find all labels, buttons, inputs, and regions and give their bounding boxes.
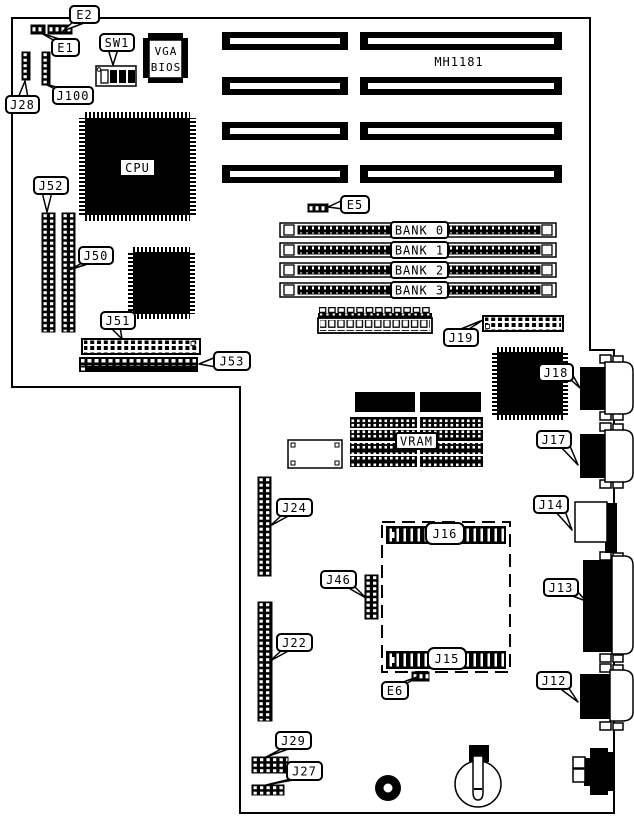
svg-text:J14: J14 — [539, 498, 564, 512]
sw1-dip-switch — [96, 66, 136, 86]
bank1-label: BANK 1 — [391, 242, 448, 258]
isa-slot — [222, 165, 348, 183]
j15-connector: J15 — [387, 648, 505, 669]
callout-e5: E5 — [328, 196, 369, 213]
svg-text:J100: J100 — [57, 89, 90, 103]
svg-text:E1: E1 — [57, 41, 73, 55]
callout-j12: J12 — [537, 672, 578, 702]
j24-header — [258, 477, 271, 576]
svg-text:J28: J28 — [10, 98, 35, 112]
svg-text:J22: J22 — [282, 636, 307, 650]
svg-text:J19: J19 — [449, 331, 474, 345]
callout-j24: J24 — [270, 499, 312, 526]
e5-jumper-block — [308, 204, 328, 212]
callout-j100: J100 — [45, 84, 93, 104]
isa-slot — [222, 32, 348, 50]
keyboard-din-connector — [573, 748, 613, 795]
callout-j29: J29 — [266, 732, 311, 757]
video-qfp-chip — [492, 347, 568, 420]
svg-text:BANK 0: BANK 0 — [395, 224, 444, 238]
j18-port — [580, 362, 633, 414]
isa-slot-group — [222, 32, 562, 183]
bank0-label: BANK 0 — [391, 222, 448, 238]
callout-j19: J19 — [444, 320, 483, 346]
callout-j13: J13 — [544, 579, 586, 601]
cpu-label: CPU — [125, 161, 150, 175]
vram-block — [350, 392, 483, 467]
svg-text:VRAM: VRAM — [400, 435, 433, 449]
j12-port — [580, 670, 633, 721]
j16-connector: J16 — [387, 523, 505, 544]
isa-slot — [360, 165, 562, 183]
j29-connector — [252, 757, 288, 773]
svg-text:E6: E6 — [387, 684, 403, 698]
isa-slot — [360, 77, 562, 95]
callout-j17: J17 — [537, 431, 578, 465]
vga-bios-label-line1: VGA — [155, 45, 178, 58]
svg-text:J16: J16 — [433, 527, 458, 541]
j46-header — [365, 575, 378, 619]
callout-sw1: SW1 — [100, 34, 134, 65]
svg-text:BANK 2: BANK 2 — [395, 264, 444, 278]
svg-text:E5: E5 — [347, 198, 363, 212]
vga-bios-chip: VGA BIOS — [143, 33, 188, 83]
j14-connector — [575, 502, 617, 553]
vga-bios-label-line2: BIOS — [151, 61, 182, 74]
j100-header — [42, 52, 50, 85]
j28-header — [22, 52, 30, 80]
callout-j28: J28 — [6, 81, 39, 113]
qfp-chip — [128, 247, 195, 319]
j27-connector — [252, 785, 284, 795]
j53-connector — [79, 357, 198, 372]
isa-slot — [360, 122, 562, 140]
isa-slot — [360, 32, 562, 50]
j17-port — [580, 430, 633, 482]
svg-text:J51: J51 — [106, 314, 131, 328]
bank3-label: BANK 3 — [391, 282, 448, 298]
bank2-label: BANK 2 — [391, 262, 448, 278]
board-part-number: MH1181 — [434, 55, 483, 69]
j13-port — [583, 556, 633, 654]
svg-text:J50: J50 — [84, 249, 109, 263]
vram-label: VRAM — [396, 433, 437, 449]
svg-text:J24: J24 — [282, 501, 307, 515]
power-connector — [318, 307, 432, 333]
svg-text:E2: E2 — [76, 8, 92, 22]
speaker — [375, 775, 401, 801]
svg-text:J53: J53 — [220, 355, 245, 369]
svg-text:J52: J52 — [39, 179, 64, 193]
svg-text:SW1: SW1 — [105, 36, 130, 50]
svg-text:BANK 1: BANK 1 — [395, 244, 444, 258]
e6-jumper-block — [412, 672, 429, 681]
callout-j50: J50 — [69, 247, 113, 270]
callout-j22: J22 — [270, 634, 312, 661]
svg-text:J29: J29 — [281, 734, 306, 748]
isa-slot — [222, 77, 348, 95]
svg-text:J12: J12 — [542, 674, 567, 688]
callout-e6: E6 — [382, 677, 417, 699]
callout-j51: J51 — [101, 312, 135, 339]
motherboard-diagram: MH1181 VGA BIOS CPU — [0, 0, 634, 823]
isa-slot — [222, 122, 348, 140]
e1-jumper-block — [31, 25, 45, 34]
j52-header — [42, 213, 55, 332]
j50-header — [62, 213, 75, 332]
svg-text:BANK 3: BANK 3 — [395, 284, 444, 298]
callout-j53: J53 — [199, 352, 250, 370]
cpu-chip: CPU — [79, 112, 196, 221]
j19-connector — [483, 316, 563, 331]
j51-connector — [82, 339, 200, 354]
battery — [455, 745, 501, 807]
svg-text:J46: J46 — [326, 573, 351, 587]
svg-text:J27: J27 — [292, 765, 317, 779]
callout-j52: J52 — [34, 177, 68, 212]
svg-text:J18: J18 — [544, 366, 569, 380]
svg-text:J13: J13 — [549, 581, 574, 595]
svg-text:J17: J17 — [542, 433, 567, 447]
svg-text:J15: J15 — [435, 652, 460, 666]
crystal-oscillator — [288, 440, 342, 468]
callout-j14: J14 — [534, 496, 572, 530]
callout-j46: J46 — [321, 571, 366, 598]
